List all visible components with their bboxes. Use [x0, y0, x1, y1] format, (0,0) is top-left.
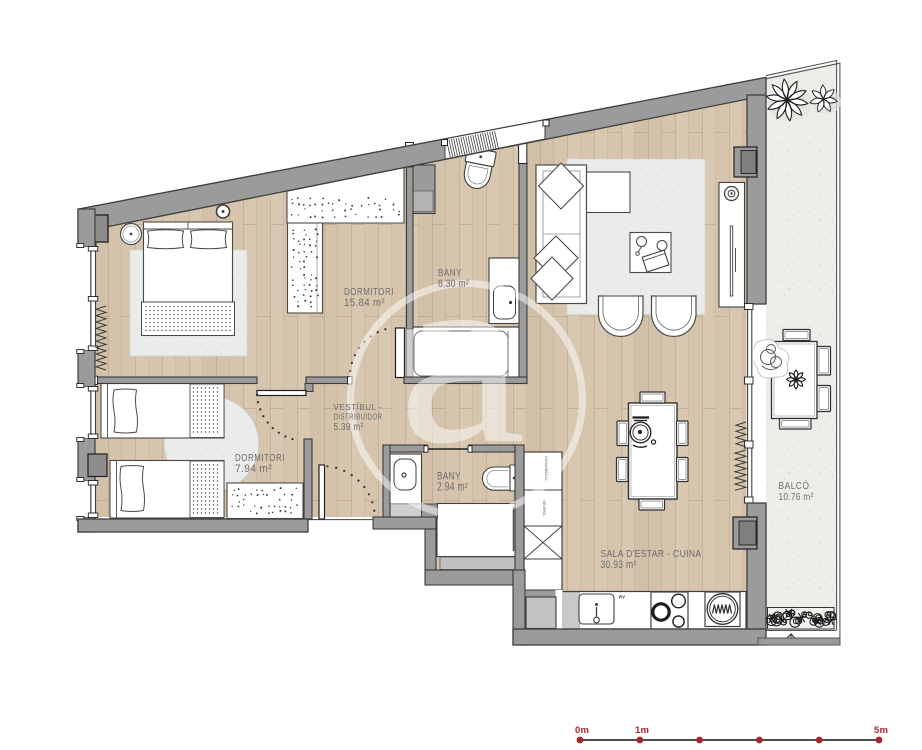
svg-text:6.30 m²: 6.30 m²	[438, 278, 469, 290]
svg-text:RV: RV	[619, 595, 625, 600]
svg-text:VESTÍBUL -: VESTÍBUL -	[334, 403, 383, 412]
svg-text:7.94 m²: 7.94 m²	[235, 463, 272, 475]
svg-text:NEVERA: NEVERA	[542, 500, 546, 516]
svg-text:2.94 m²: 2.94 m²	[437, 482, 468, 494]
svg-text:DISTRIBUIDOR: DISTRIBUIDOR	[334, 413, 383, 422]
svg-text:1m: 1m	[635, 725, 649, 736]
svg-text:5.39 m²: 5.39 m²	[334, 422, 364, 433]
svg-text:15.84 m²: 15.84 m²	[344, 297, 385, 309]
svg-text:0m: 0m	[575, 725, 589, 736]
svg-text:30.93 m²: 30.93 m²	[601, 559, 637, 571]
svg-text:a: a	[398, 212, 526, 497]
svg-text:5m: 5m	[874, 725, 888, 736]
svg-text:10.76 m²: 10.76 m²	[779, 491, 814, 503]
